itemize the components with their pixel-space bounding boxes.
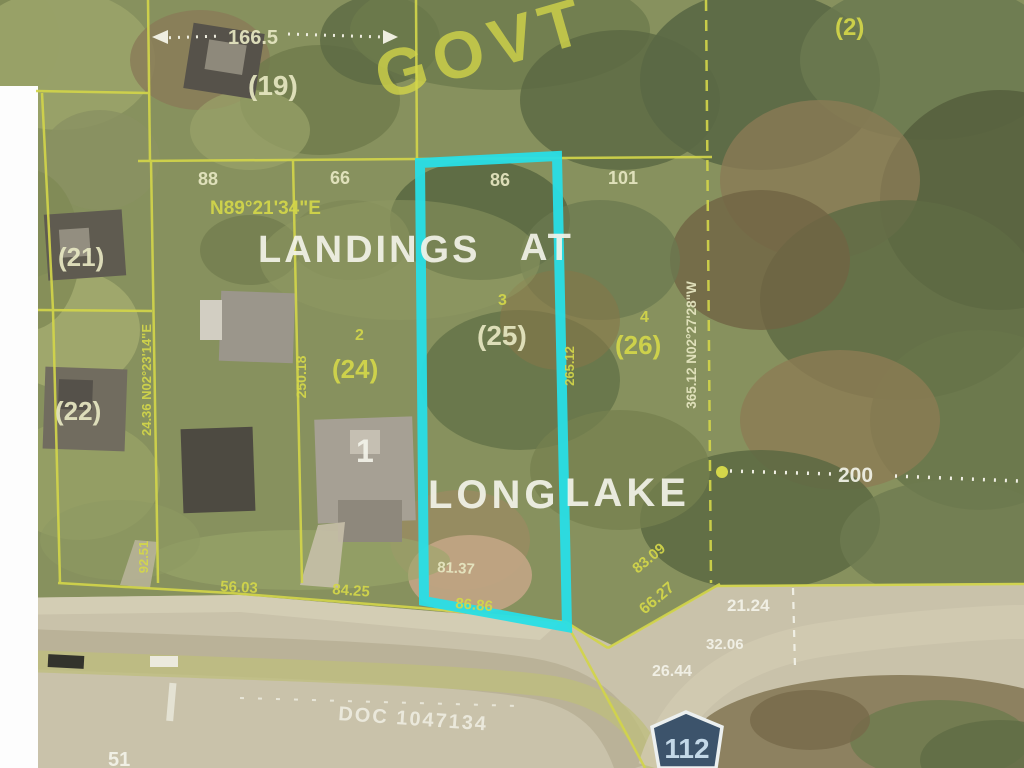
label-seg-88: 88 bbox=[198, 169, 218, 189]
label-parcel-24: (24) bbox=[332, 354, 378, 384]
car-dark bbox=[48, 654, 85, 669]
label-lot4-number: 4 bbox=[640, 309, 649, 326]
label-bearing-right: 365.12 N02°27'28"W bbox=[684, 281, 699, 409]
label-bearing-left: 24.36 N02°23'14"E bbox=[139, 324, 154, 436]
gis-aerial-parcel-map: GOVT 166.5 (19) (2) 88 66 86 101 N89°21'… bbox=[0, 0, 1024, 768]
label-dim-200: 200 bbox=[838, 464, 873, 487]
label-seg-66: 66 bbox=[330, 168, 350, 188]
car-white bbox=[150, 656, 178, 667]
label-dim-166-5: 166.5 bbox=[228, 27, 278, 49]
map-canvas: GOVT 166.5 (19) (2) 88 66 86 101 N89°21'… bbox=[0, 0, 1024, 768]
house-24 bbox=[219, 291, 295, 364]
label-lot2-number: 2 bbox=[355, 327, 364, 344]
label-lot1-number: 1 bbox=[356, 433, 374, 469]
label-parcel-25: (25) bbox=[477, 320, 527, 351]
label-dim-21-24: 21.24 bbox=[727, 596, 770, 615]
label-dim-86-86: 86.86 bbox=[455, 595, 494, 615]
label-dim-92-51: 92.51 bbox=[136, 541, 151, 574]
label-seg-86: 86 bbox=[490, 170, 510, 190]
label-dim-265-12: 265.12 bbox=[562, 346, 577, 386]
label-dim-84-25: 84.25 bbox=[332, 581, 371, 601]
label-lake-word2: LAKE bbox=[565, 471, 690, 515]
highway-shield-number: 112 bbox=[664, 733, 709, 764]
label-plat-word2: AT bbox=[520, 227, 574, 269]
label-dim-81-37: 81.37 bbox=[437, 559, 475, 578]
map-white-margin bbox=[0, 86, 38, 768]
label-dim-250-18: 250.18 bbox=[293, 355, 309, 398]
label-plat-word1: LANDINGS bbox=[258, 229, 480, 271]
label-parcel-21: (21) bbox=[58, 242, 104, 272]
label-parcel-26: (26) bbox=[615, 330, 661, 360]
house-dark bbox=[181, 427, 256, 513]
survey-point-icon bbox=[716, 466, 728, 478]
label-bearing-top: N89°21'34"E bbox=[210, 198, 321, 219]
label-parcel-22: (22) bbox=[55, 396, 101, 426]
label-parcel-2: (2) bbox=[835, 14, 864, 41]
label-seg-101: 101 bbox=[608, 168, 638, 188]
label-partial-51: 51 bbox=[108, 749, 130, 768]
label-parcel-19: (19) bbox=[248, 70, 298, 101]
label-lot3-number: 3 bbox=[498, 292, 507, 309]
label-lake-word1: LONG bbox=[428, 473, 560, 517]
label-dim-56-03: 56.03 bbox=[220, 578, 258, 597]
label-dim-32-06: 32.06 bbox=[706, 636, 744, 653]
label-dim-26-44: 26.44 bbox=[652, 663, 692, 680]
